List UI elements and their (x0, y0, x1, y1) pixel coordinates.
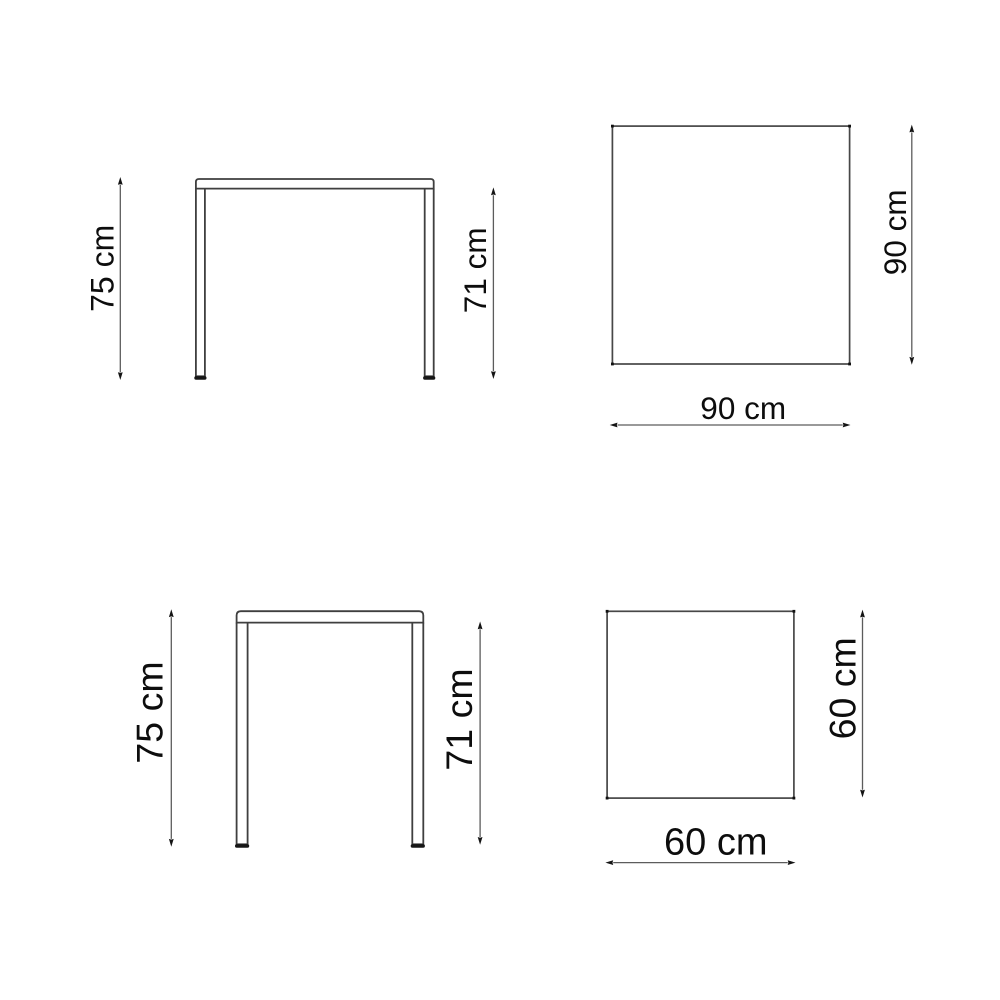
svg-text:60 cm: 60 cm (664, 822, 767, 864)
svg-text:75 cm: 75 cm (84, 225, 120, 312)
svg-text:71 cm: 71 cm (457, 227, 493, 313)
svg-text:71 cm: 71 cm (438, 668, 480, 770)
svg-text:75 cm: 75 cm (129, 661, 171, 763)
svg-text:60 cm: 60 cm (821, 637, 863, 739)
svg-text:90 cm: 90 cm (877, 189, 913, 275)
svg-text:90 cm: 90 cm (700, 390, 786, 426)
